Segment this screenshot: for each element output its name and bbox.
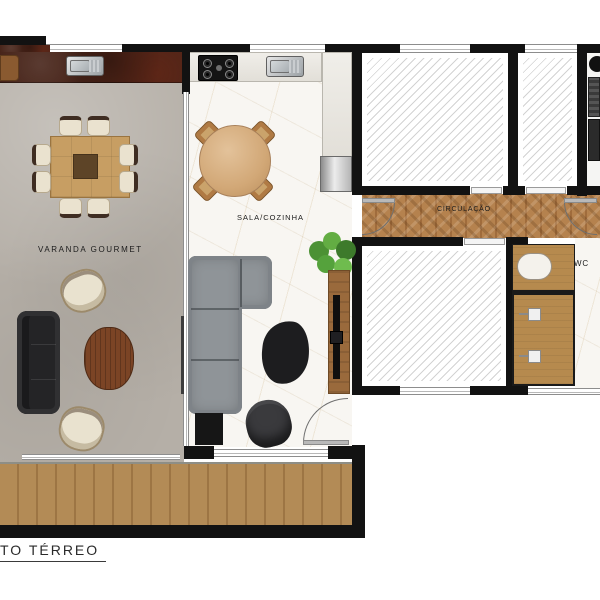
wall (508, 52, 518, 186)
door-leaf (362, 198, 395, 203)
neighbor-cooktop-icon (589, 56, 600, 72)
dining-chair (32, 171, 51, 193)
burner-center-icon (216, 65, 222, 71)
sectional-sofa-body (188, 256, 242, 414)
room-hatched-2 (518, 53, 577, 186)
floor-plan: VARANDA GOURMET SALA/COZINHA CIRCULAÇÃO … (0, 0, 600, 600)
wall (352, 186, 470, 195)
outdoor-sink (66, 56, 104, 76)
window (214, 449, 328, 457)
burner-icon (225, 59, 234, 68)
round-table (199, 125, 271, 197)
neighbor-appliance (588, 119, 600, 161)
cooktop (198, 55, 238, 81)
window (400, 387, 470, 395)
sofa-seam (31, 344, 56, 345)
cutting-board (0, 55, 19, 81)
wall (577, 44, 587, 196)
sink-basin (70, 60, 90, 72)
side-table (195, 413, 223, 445)
washbasin (517, 253, 552, 280)
kitchen-sink (266, 56, 304, 77)
wall (503, 186, 525, 195)
wall (352, 386, 400, 395)
sofa-seam (31, 379, 56, 380)
door-leaf (464, 238, 505, 245)
closet-handle (528, 350, 541, 363)
wall (184, 446, 214, 459)
closet (512, 293, 575, 386)
door-leaf (564, 198, 597, 203)
door-leaf (471, 187, 502, 194)
room-hatched-1 (362, 53, 508, 186)
wall (0, 36, 46, 45)
neighbor-appliance (588, 77, 600, 117)
dining-chair (59, 116, 82, 136)
wall (362, 237, 463, 246)
room-label-sala: SALA/COZINHA (237, 213, 304, 222)
dining-table-center (73, 154, 98, 179)
window (400, 44, 470, 53)
tv-media-box (330, 331, 343, 344)
room-hatched-3 (362, 246, 506, 386)
dining-chair (119, 171, 138, 193)
wall (352, 44, 362, 194)
window (528, 388, 600, 395)
room-label-wc: WC (574, 259, 589, 268)
sofa-seam (191, 308, 239, 310)
kitchen-counter-right (322, 52, 352, 158)
dining-chair (119, 144, 138, 166)
wall (182, 44, 190, 94)
door-leaf (303, 440, 349, 445)
window (525, 44, 578, 53)
plant-leaf (336, 240, 356, 260)
room-label-circulacao: CIRCULAÇÃO (437, 206, 491, 213)
door-leaf (526, 187, 566, 194)
wall (567, 186, 600, 195)
plan-title: TO TÉRREO (0, 542, 106, 562)
wall (0, 525, 365, 538)
room-label-varanda: VARANDA GOURMET (38, 245, 143, 254)
sofa-seam (191, 359, 239, 361)
burner-icon (225, 70, 234, 79)
dining-chair (87, 198, 110, 218)
granite-counter (0, 45, 50, 52)
dining-chair (87, 116, 110, 136)
refrigerator (320, 156, 352, 192)
closet-handle (528, 308, 541, 321)
black-sofa (17, 311, 60, 414)
deck-floor (0, 462, 352, 527)
burner-icon (203, 70, 212, 79)
burner-icon (203, 59, 212, 68)
dining-chair (59, 198, 82, 218)
sink-basin (270, 60, 290, 73)
door-frame (181, 316, 184, 394)
wall (470, 386, 528, 395)
sofa-seam (240, 259, 242, 307)
sliding-door-track (22, 454, 180, 460)
dining-chair (32, 144, 51, 166)
sink-drainboard (289, 60, 301, 73)
coffee-table (84, 327, 134, 390)
sink-drainboard (89, 60, 101, 72)
